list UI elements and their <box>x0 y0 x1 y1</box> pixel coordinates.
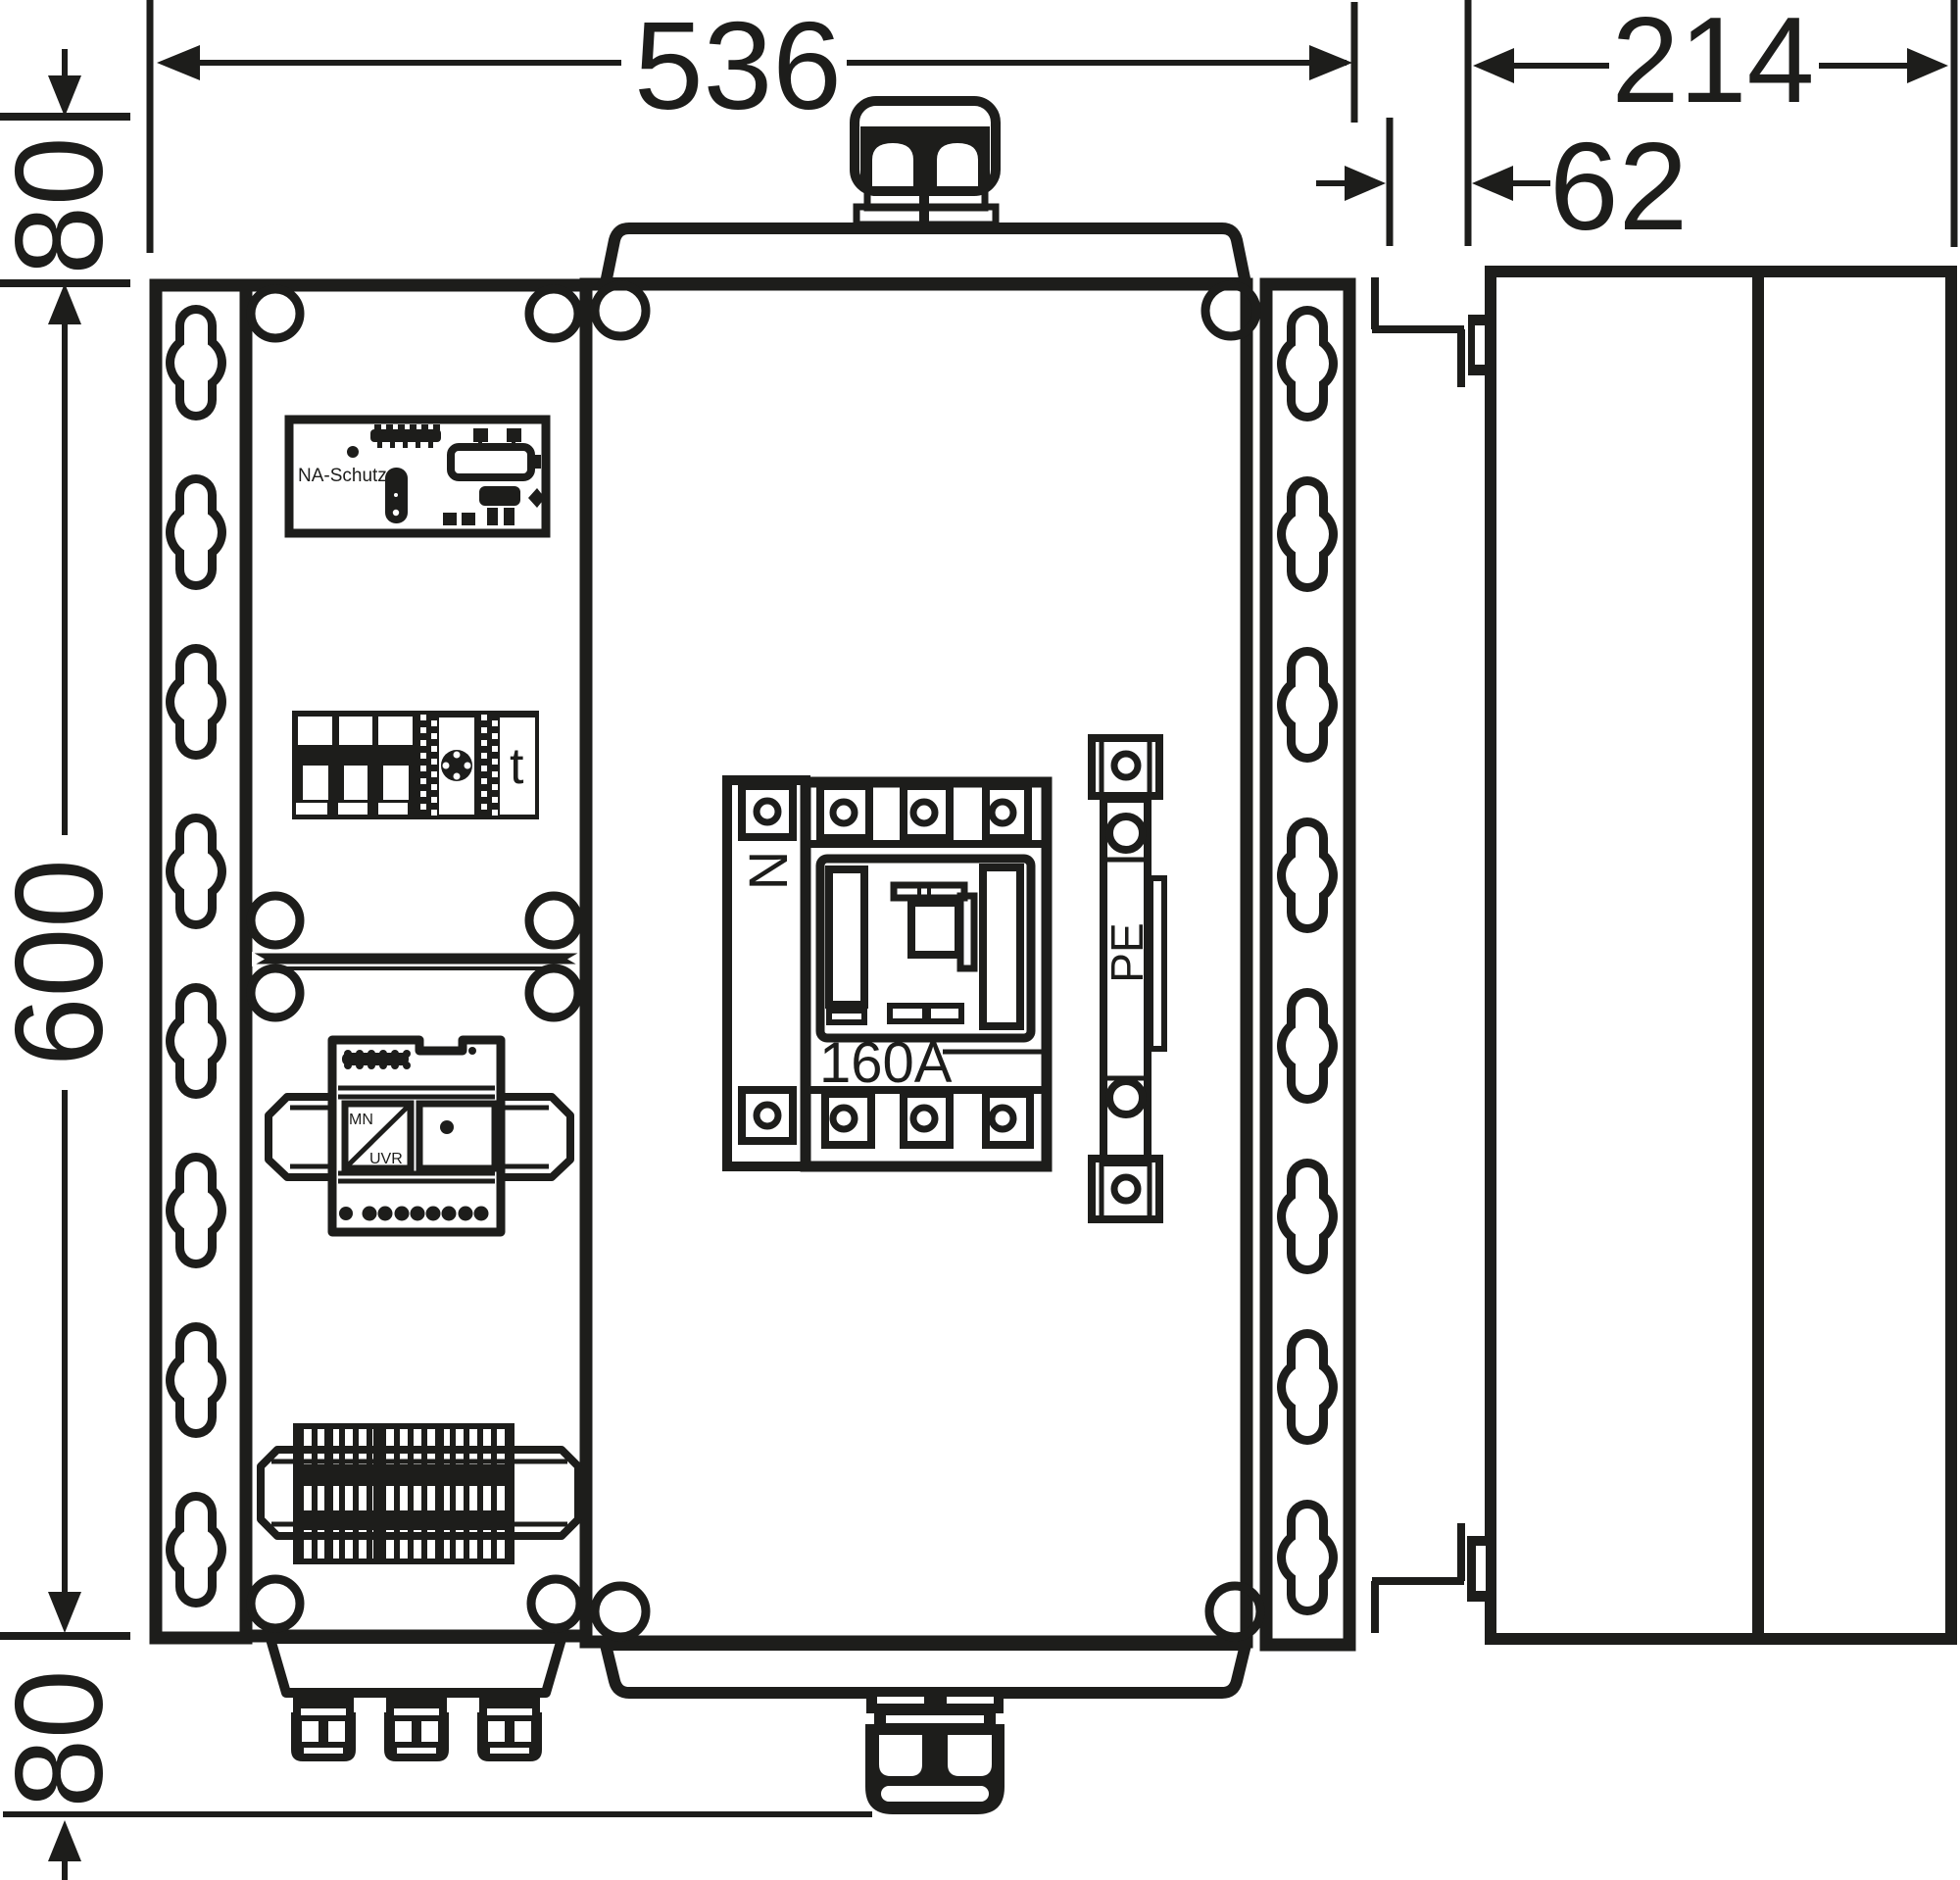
svg-text:80: 80 <box>0 136 128 274</box>
svg-text:214: 214 <box>1612 0 1815 128</box>
svg-text:62: 62 <box>1549 117 1688 256</box>
svg-text:N: N <box>737 851 799 890</box>
svg-text:160A: 160A <box>819 1031 953 1095</box>
svg-text:UVR: UVR <box>369 1151 403 1167</box>
svg-text:600: 600 <box>0 859 128 1066</box>
svg-text:80: 80 <box>0 1669 128 1807</box>
svg-text:MN: MN <box>349 1112 373 1128</box>
svg-text:NA-Schutz: NA-Schutz <box>298 466 387 486</box>
svg-text:t: t <box>510 738 524 795</box>
svg-text:PE: PE <box>1102 922 1152 982</box>
svg-text:536: 536 <box>634 0 842 135</box>
